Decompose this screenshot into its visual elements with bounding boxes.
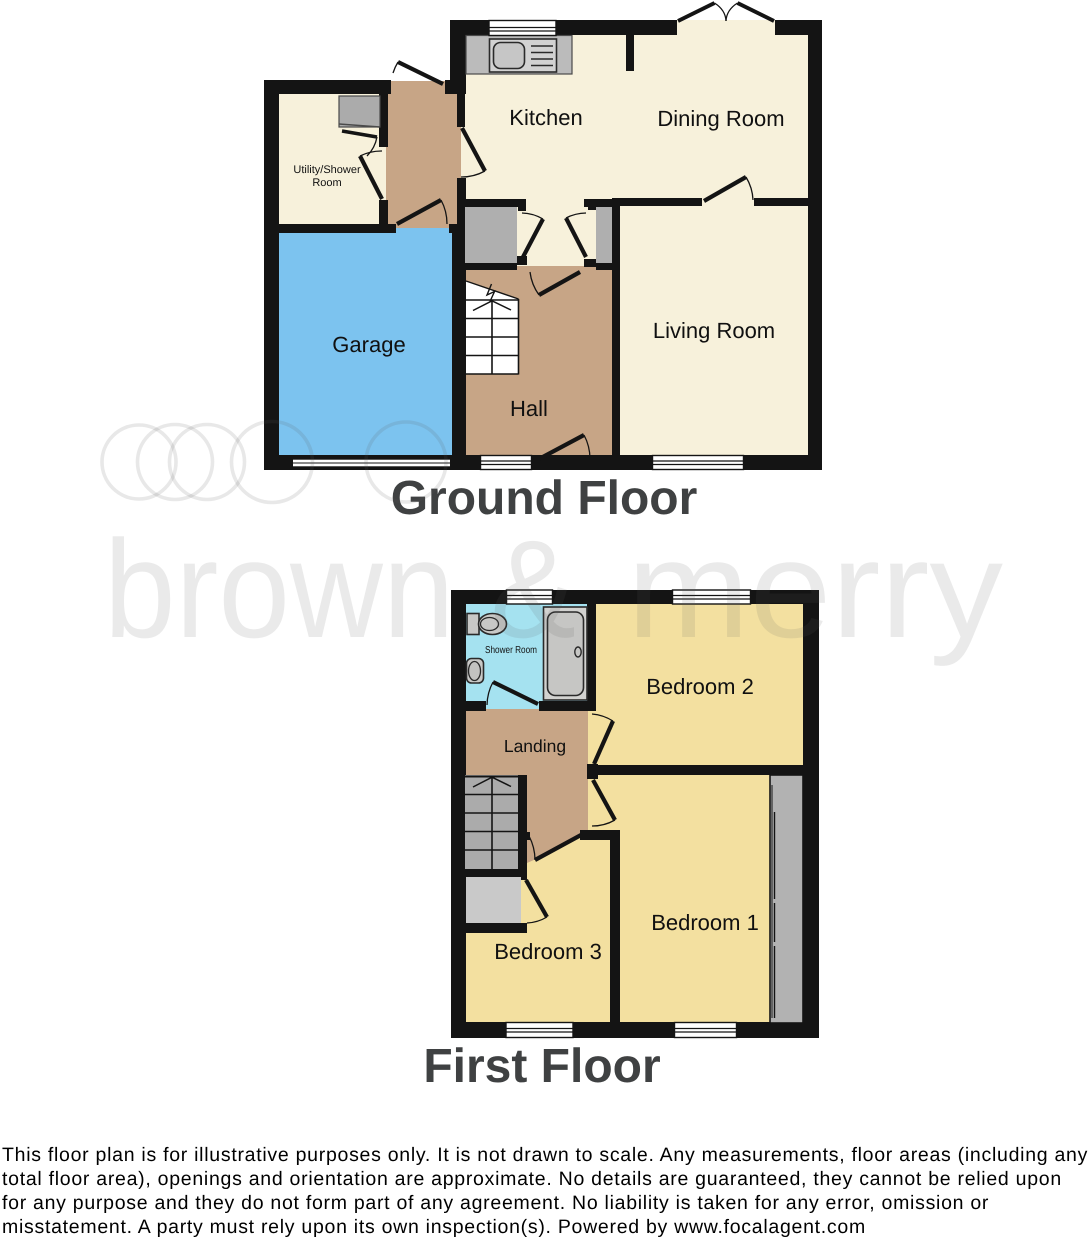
svg-text:Dining Room: Dining Room xyxy=(657,106,784,131)
svg-text:This floor plan is for illustr: This floor plan is for illustrative purp… xyxy=(2,1144,1088,1166)
svg-text:Bedroom 2: Bedroom 2 xyxy=(646,674,754,699)
svg-text:brown &: brown & xyxy=(104,512,576,667)
svg-text:Utility/Shower: Utility/Shower xyxy=(293,164,361,176)
svg-text:Kitchen: Kitchen xyxy=(509,105,582,130)
svg-text:Hall: Hall xyxy=(510,396,548,421)
svg-text:First Floor: First Floor xyxy=(423,1040,660,1093)
svg-text:Landing: Landing xyxy=(504,736,566,756)
svg-text:Bedroom 1: Bedroom 1 xyxy=(651,910,759,935)
svg-text:Room: Room xyxy=(312,177,341,189)
svg-text:misstatement. A party must rel: misstatement. A party must rely upon its… xyxy=(2,1216,866,1238)
svg-text:merry: merry xyxy=(627,512,1004,667)
svg-text:for any purpose and they do no: for any purpose and they do not form par… xyxy=(2,1192,989,1214)
svg-text:total floor area), openings an: total floor area), openings and orientat… xyxy=(2,1168,1062,1190)
svg-text:Bedroom 3: Bedroom 3 xyxy=(494,939,602,964)
svg-text:Living Room: Living Room xyxy=(653,318,775,343)
svg-text:Garage: Garage xyxy=(332,332,405,357)
